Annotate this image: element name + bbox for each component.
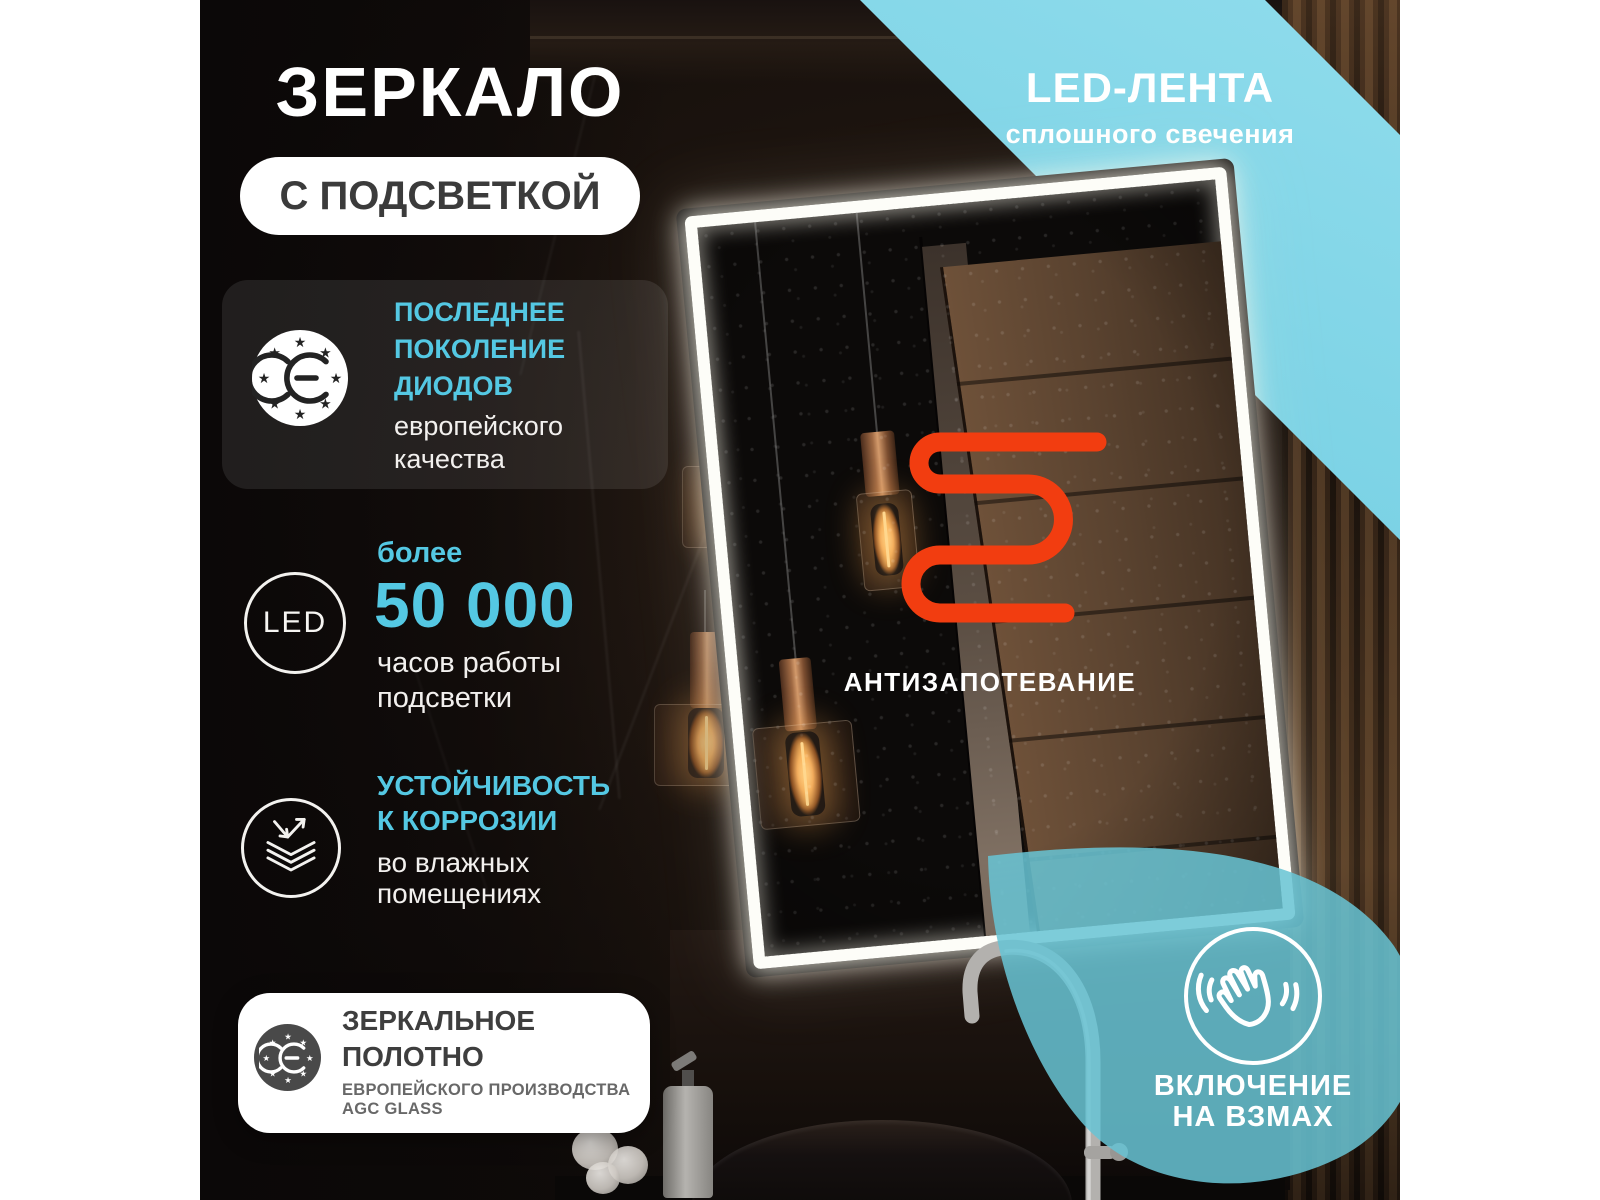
corrosion-layers-icon xyxy=(241,798,341,898)
glass-card: ★★★ ★★★ ★★ ЗЕРКАЛЬНОЕ ПОЛОТНО ЕВРОПЕЙСКО… xyxy=(238,993,650,1133)
feature-subtitle-hours: часов работы подсветки xyxy=(377,646,561,716)
feature-subtitle-diodes: европейского качества xyxy=(394,410,563,476)
ce-stars-icon: ★★★ ★★★ ★★ xyxy=(252,330,348,426)
feature-subtitle-line: европейского xyxy=(394,410,563,443)
feature-subtitle-line: во влажных xyxy=(377,847,541,878)
svg-text:★: ★ xyxy=(330,371,343,387)
svg-text:★: ★ xyxy=(319,396,332,412)
feature-subtitle-line: качества xyxy=(394,443,563,476)
feature-intro-hours: более xyxy=(377,537,462,570)
svg-text:★: ★ xyxy=(268,396,281,412)
svg-text:★: ★ xyxy=(258,371,271,387)
product-card: LED-ЛЕНТА сплошного свечения xyxy=(0,0,1600,1200)
svg-text:★: ★ xyxy=(294,335,307,351)
feature-title-corrosion: УСТОЙЧИВОСТЬ К КОРРОЗИИ xyxy=(377,768,610,838)
ce-stars-icon: ★★★ ★★★ ★★ xyxy=(254,1024,321,1091)
feature-subtitle-line: подсветки xyxy=(377,681,561,716)
svg-text:★: ★ xyxy=(262,1053,270,1063)
feature-title-line: ПОКОЛЕНИЕ xyxy=(394,331,565,368)
svg-text:★: ★ xyxy=(299,1037,307,1047)
svg-text:★: ★ xyxy=(319,346,332,362)
feature-subtitle-corrosion: во влажных помещениях xyxy=(377,847,541,909)
gesture-label-line1: ВКЛЮЧЕНИЕ xyxy=(1103,1070,1400,1103)
glass-card-title-line: ЗЕРКАЛЬНОЕ xyxy=(342,1003,535,1039)
feature-title-line: К КОРРОЗИИ xyxy=(377,803,610,838)
glass-card-subtitle: ЕВРОПЕЙСКОГО ПРОИЗВОДСТВА AGC GLASS xyxy=(342,1081,630,1119)
svg-text:★: ★ xyxy=(268,1037,276,1047)
svg-text:★: ★ xyxy=(305,1053,313,1063)
glass-card-title-line: ПОЛОТНО xyxy=(342,1039,535,1075)
glass-card-subtitle-line: AGC GLASS xyxy=(342,1100,630,1119)
photo-canvas: LED-ЛЕНТА сплошного свечения xyxy=(200,0,1400,1200)
feature-title-line: УСТОЙЧИВОСТЬ xyxy=(377,768,610,803)
feature-title-line: ДИОДОВ xyxy=(394,368,565,405)
svg-text:★: ★ xyxy=(284,1074,292,1084)
page-title: ЗЕРКАЛО xyxy=(230,52,670,132)
feature-title-line: ПОСЛЕДНЕЕ xyxy=(394,294,565,331)
gesture-label-line2: НА ВЗМАХ xyxy=(1103,1101,1400,1134)
svg-text:★: ★ xyxy=(284,1031,292,1041)
feature-subtitle-line: часов работы xyxy=(377,646,561,681)
svg-text:★: ★ xyxy=(268,1068,276,1078)
svg-text:★: ★ xyxy=(299,1068,307,1078)
led-ring-label: LED xyxy=(263,606,327,640)
glass-card-title: ЗЕРКАЛЬНОЕ ПОЛОТНО xyxy=(342,1003,535,1075)
led-ring-icon: LED xyxy=(244,572,346,674)
feature-title-diodes: ПОСЛЕДНЕЕ ПОКОЛЕНИЕ ДИОДОВ xyxy=(394,294,565,405)
glass-card-subtitle-line: ЕВРОПЕЙСКОГО ПРОИЗВОДСТВА xyxy=(342,1081,630,1100)
feature-value-hours: 50 000 xyxy=(374,568,576,642)
feature-subtitle-line: помещениях xyxy=(377,878,541,909)
svg-text:★: ★ xyxy=(294,407,307,423)
svg-text:★: ★ xyxy=(268,346,281,362)
title-badge: С ПОДСВЕТКОЙ xyxy=(240,157,640,235)
